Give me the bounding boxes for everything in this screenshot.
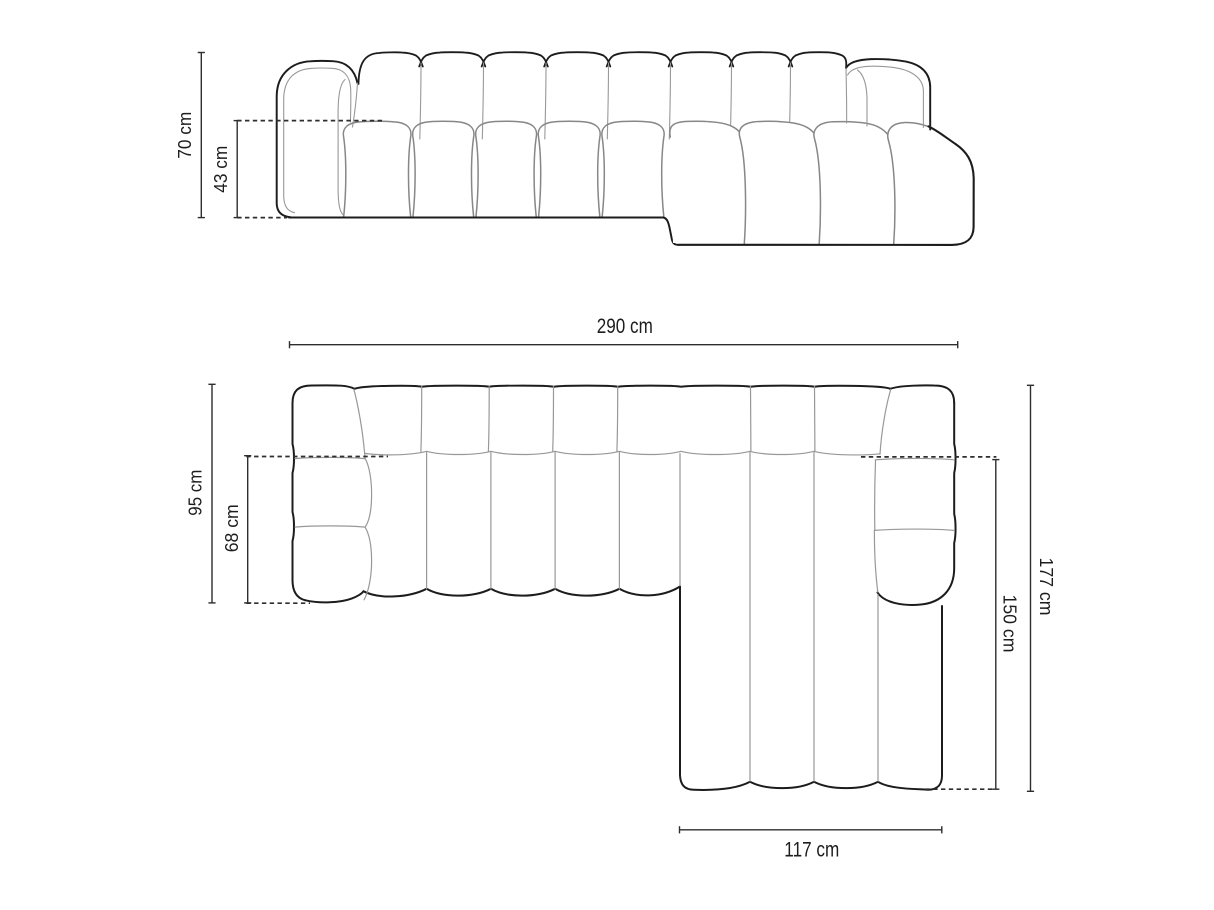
svg-text:117 cm: 117 cm (784, 838, 839, 861)
svg-text:95 cm: 95 cm (184, 470, 205, 516)
svg-text:177 cm: 177 cm (1036, 558, 1057, 616)
svg-text:68 cm: 68 cm (221, 504, 242, 552)
svg-text:150 cm: 150 cm (1000, 595, 1021, 653)
svg-text:290 cm: 290 cm (597, 315, 653, 338)
svg-text:70 cm: 70 cm (174, 112, 195, 159)
svg-text:43 cm: 43 cm (210, 146, 231, 193)
